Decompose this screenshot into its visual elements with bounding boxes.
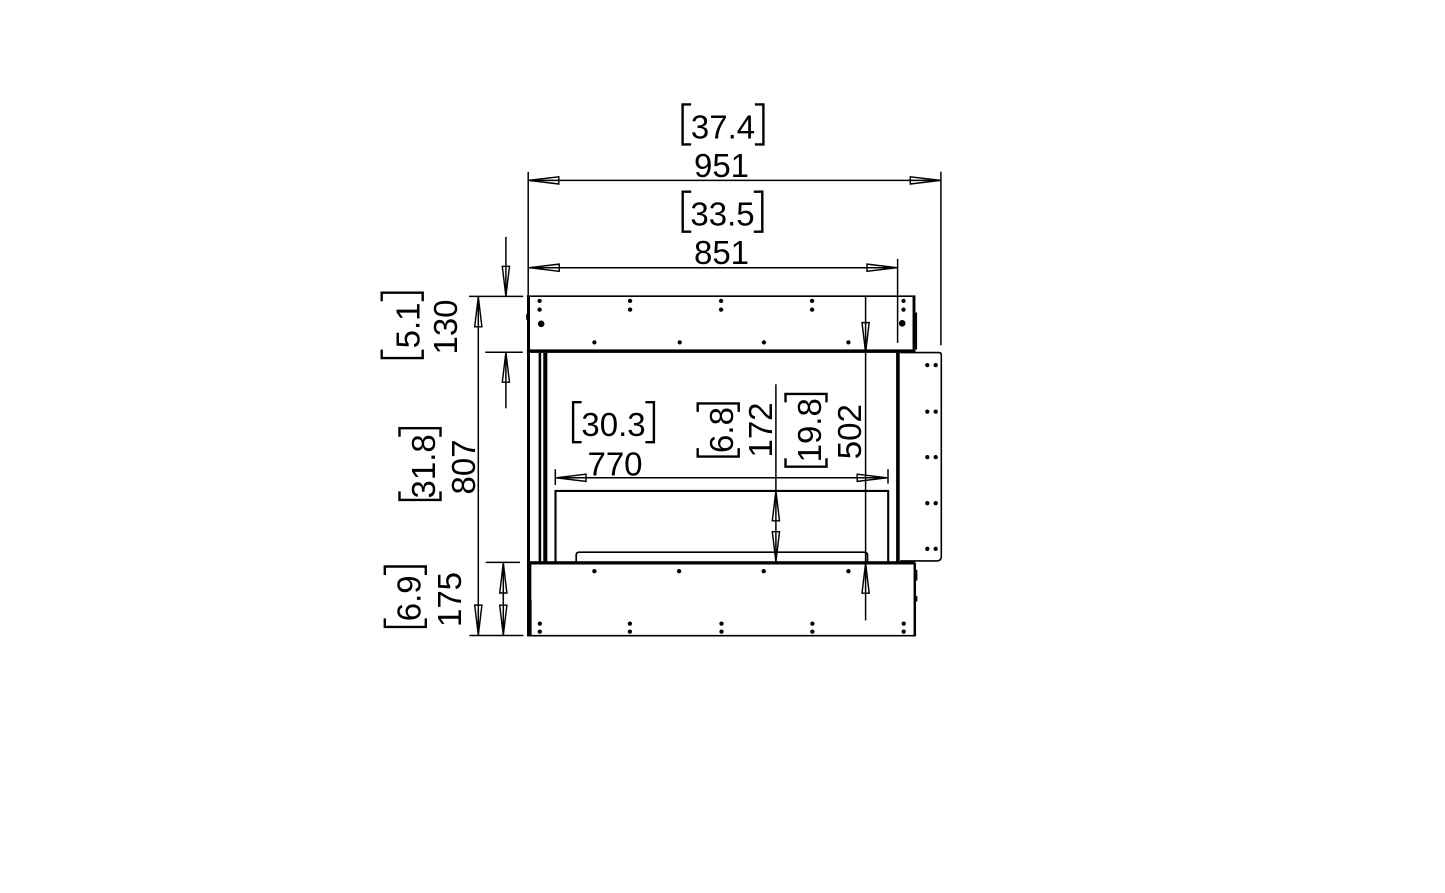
svg-text:30.3: 30.3 [581,406,645,443]
svg-text:770: 770 [587,445,642,482]
svg-text:851: 851 [694,234,749,271]
svg-text:31.8: 31.8 [405,434,442,498]
svg-text:6.8: 6.8 [703,407,740,453]
svg-text:172: 172 [742,402,779,457]
svg-text:33.5: 33.5 [690,196,754,233]
svg-text:5.1: 5.1 [390,302,427,348]
svg-text:807: 807 [445,439,482,494]
svg-text:19.8: 19.8 [791,398,828,462]
svg-text:502: 502 [831,404,868,459]
svg-text:130: 130 [427,299,464,354]
svg-text:951: 951 [694,147,749,184]
svg-text:37.4: 37.4 [691,108,755,145]
svg-text:6.9: 6.9 [390,575,427,621]
svg-text:175: 175 [431,572,468,627]
